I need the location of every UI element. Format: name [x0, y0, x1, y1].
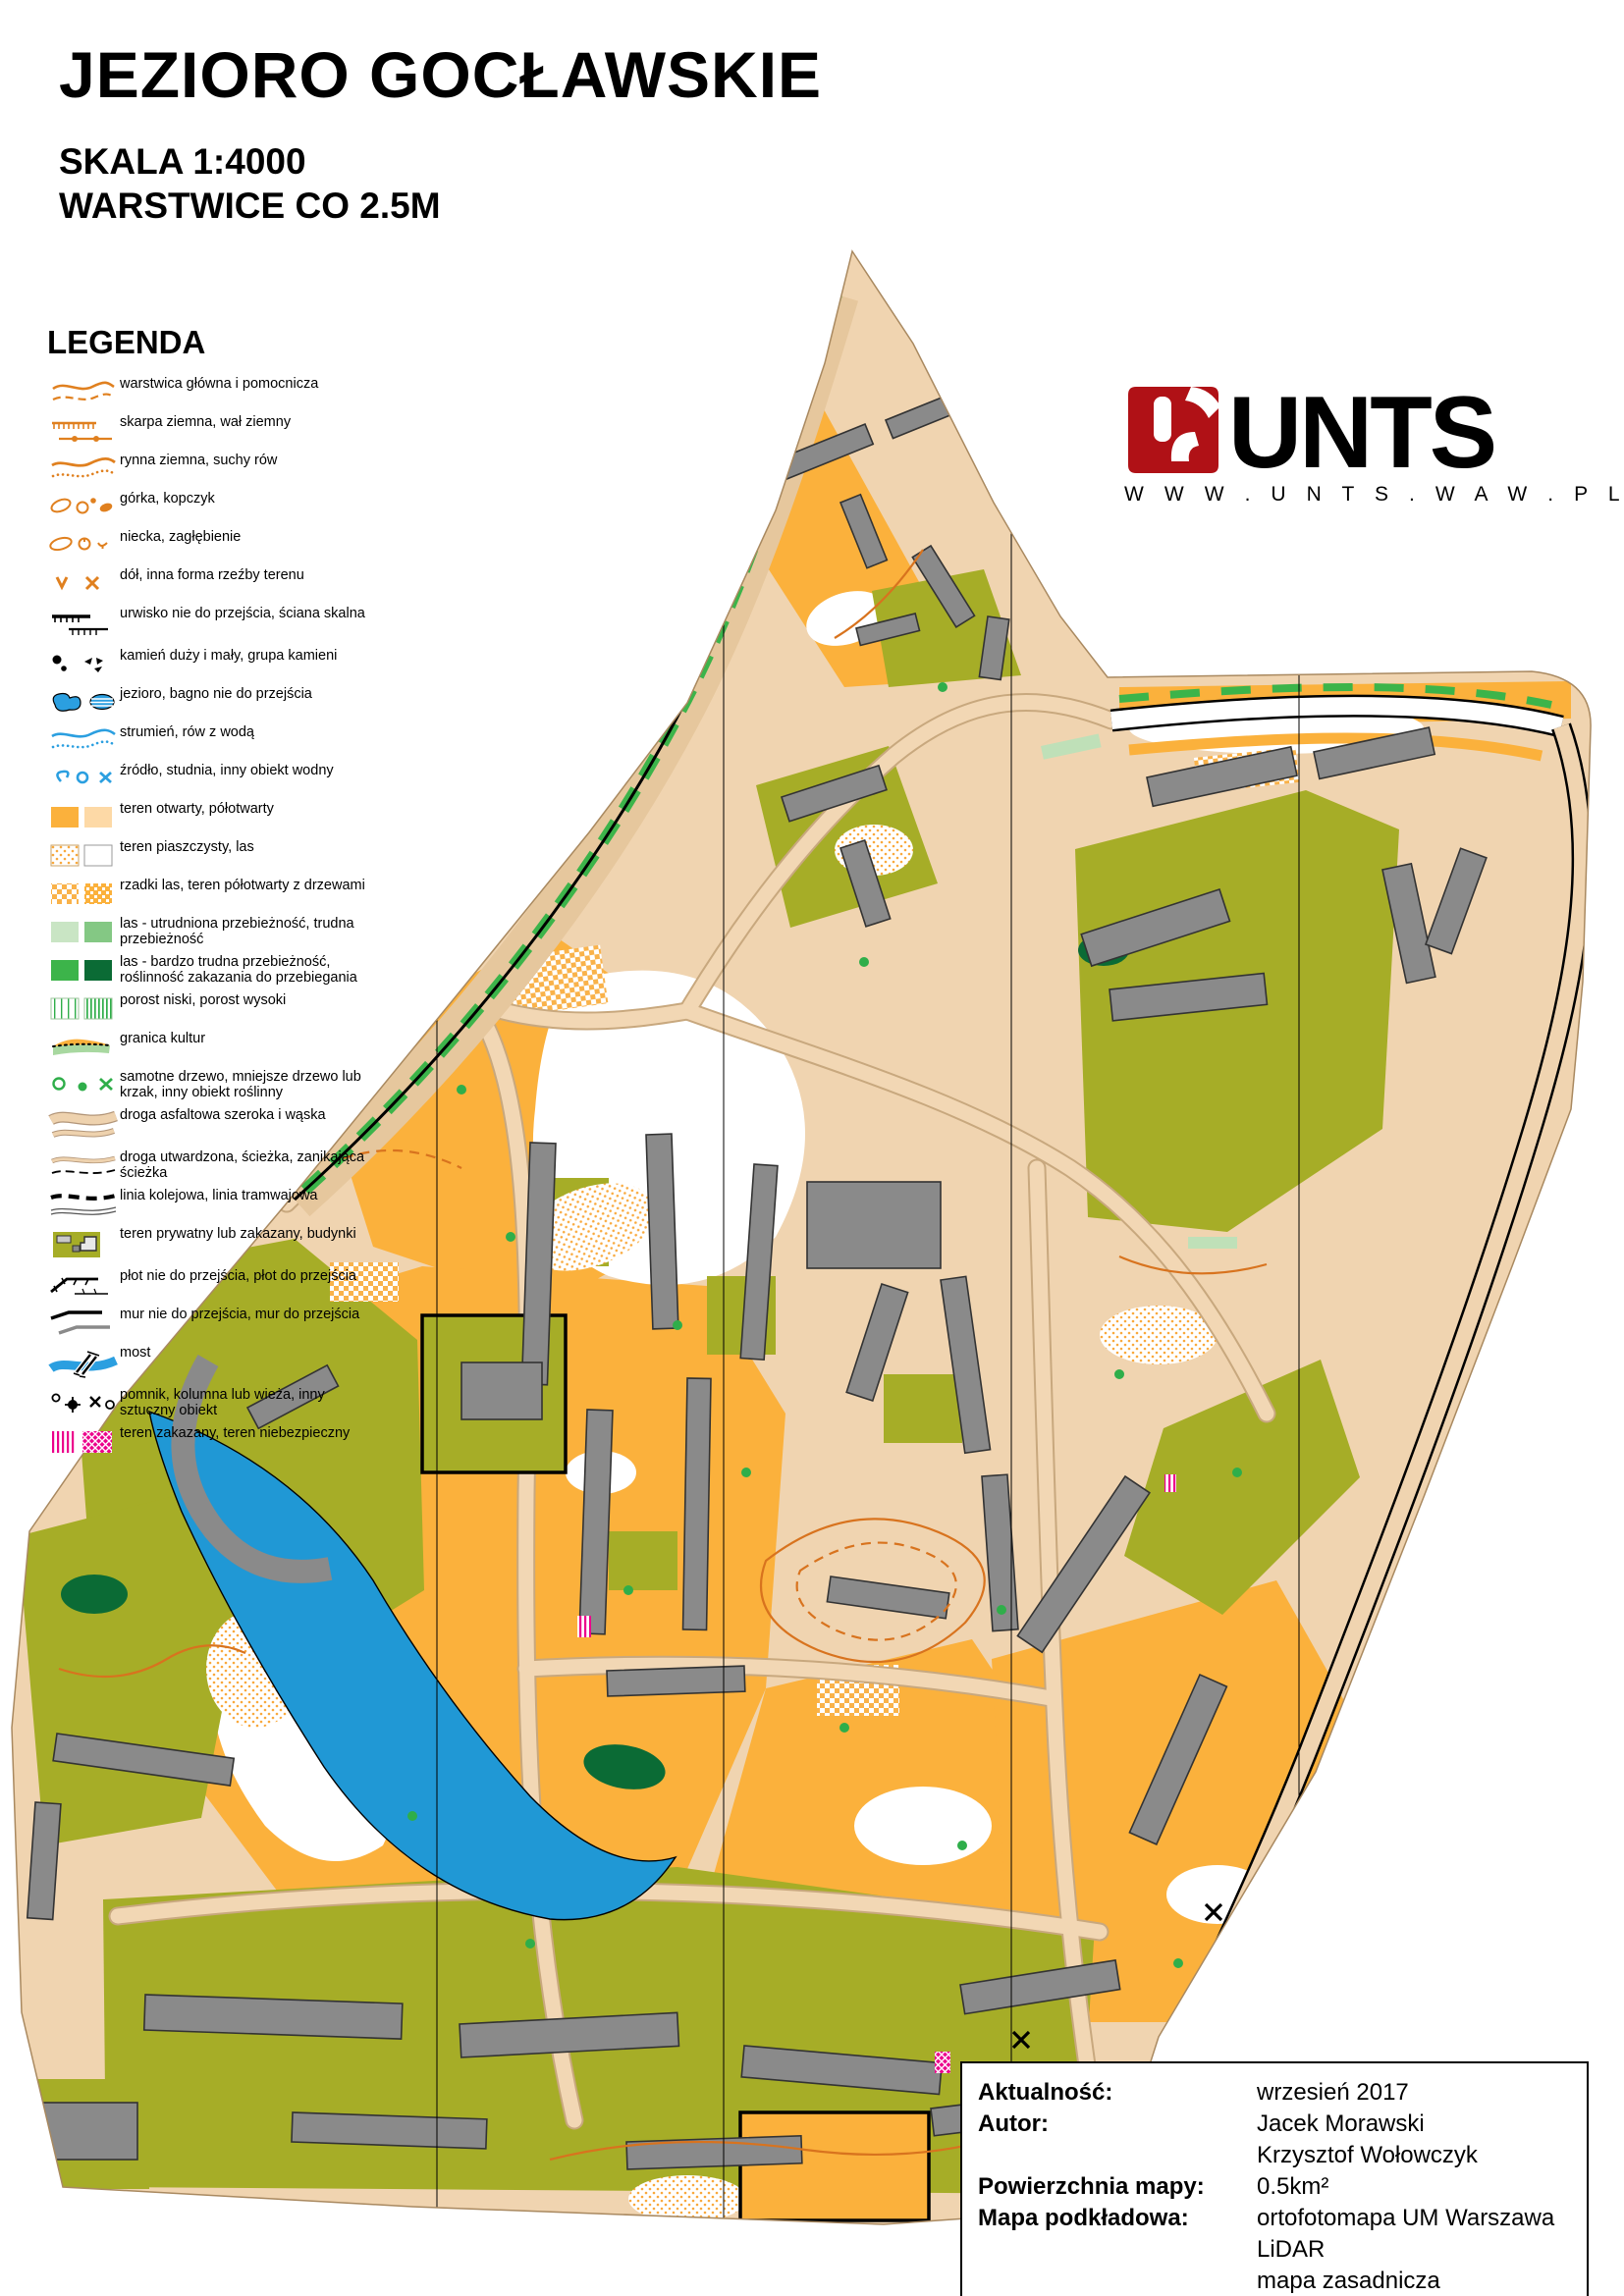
lone-tree-bush-vegetation-icon	[47, 1071, 120, 1100]
map-sheet: { "header": { "title": "JEZIORO GOCŁAWSK…	[0, 0, 1624, 2296]
earth-slope-bank-icon	[47, 416, 120, 446]
legend-item: płot nie do przejścia, płot do przejścia	[47, 1269, 401, 1300]
bridge-icon	[47, 1347, 120, 1380]
railway-tramway-icon	[47, 1190, 120, 1219]
page-title: JEZIORO GOCŁAWSKIE	[59, 37, 822, 112]
contour-main-helper-icon	[47, 378, 120, 407]
credits-row: Krzysztof Wołowczyk	[978, 2140, 1571, 2171]
credits-value: 0.5km²	[1257, 2171, 1571, 2203]
logo-wordmark: UNTS	[1228, 391, 1494, 475]
legend-item: dół, inna forma rzeźby terenu	[47, 568, 401, 599]
legend-item: las - utrudniona przebieżność, trudna pr…	[47, 917, 401, 947]
credits-label: Aktualność:	[978, 2077, 1257, 2109]
legend-item: jezioro, bagno nie do przejścia	[47, 687, 401, 718]
wall-impassable-passable-icon	[47, 1308, 120, 1338]
impassable-cliff-rockface-icon	[47, 608, 120, 641]
credits-row: Mapa podkładowa: ortofotomapa UM Warszaw…	[978, 2203, 1571, 2234]
private-forbidden-area-buildings-icon	[47, 1228, 120, 1261]
legend-item: górka, kopczyk	[47, 492, 401, 522]
legend-item: teren zakazany, teren niebezpieczny	[47, 1426, 401, 1457]
monument-column-tower-icon	[47, 1389, 120, 1418]
undergrowth-low-high-icon	[47, 994, 120, 1024]
legend-item: źródło, studnia, inny obiekt wodny	[47, 764, 401, 794]
credits-value: ortofotomapa UM Warszawa	[1257, 2203, 1571, 2234]
header: JEZIORO GOCŁAWSKIE SKALA 1:4000 WARSTWIC…	[59, 37, 822, 228]
legend-item: linia kolejowa, linia tramwajowa	[47, 1189, 401, 1219]
credits-value: Krzysztof Wołowczyk	[1257, 2140, 1571, 2171]
lake-impassable-marsh-icon	[47, 688, 120, 718]
legend-item: granica kultur	[47, 1032, 401, 1062]
credits-row: LiDAR	[978, 2234, 1571, 2266]
legend: LEGENDA warstwica główna i pomocnicza sk…	[47, 324, 401, 1465]
legend-item: porost niski, porost wysoki	[47, 993, 401, 1024]
credits-label: Autor:	[978, 2109, 1257, 2140]
legend-item: most	[47, 1346, 401, 1380]
credits-value: Jacek Morawski	[1257, 2109, 1571, 2140]
track-path-fading-path-icon	[47, 1151, 120, 1181]
credits-row: Autor: Jacek Morawski	[978, 2109, 1571, 2140]
legend-heading: LEGENDA	[47, 324, 401, 361]
legend-item: strumień, rów z wodą	[47, 725, 401, 756]
credits-value: mapa zasadnicza	[1257, 2266, 1571, 2296]
legend-item: pomnik, kolumna lub wieża, inny sztuczny…	[47, 1388, 401, 1418]
sandy-terrain-forest-icon	[47, 841, 120, 871]
pit-landform-icon	[47, 569, 120, 599]
knoll-mound-icon	[47, 493, 120, 522]
legend-item: urwisko nie do przejścia, ściana skalna	[47, 607, 401, 641]
forest-slow-difficult-icon	[47, 918, 120, 947]
spring-well-water-object-icon	[47, 765, 120, 794]
boulder-stone-group-icon	[47, 650, 120, 679]
cultivation-boundary-icon	[47, 1033, 120, 1062]
credits-row: Aktualność: wrzesień 2017	[978, 2077, 1571, 2109]
credits-label: Powierzchnia mapy:	[978, 2171, 1257, 2203]
legend-item: droga utwardzona, ścieżka, zanikająca śc…	[47, 1150, 401, 1181]
open-semiopen-terrain-icon	[47, 803, 120, 832]
legend-item: rynna ziemna, suchy rów	[47, 454, 401, 484]
un-monogram-icon	[1124, 385, 1222, 475]
legend-item: teren prywatny lub zakazany, budynki	[47, 1227, 401, 1261]
legend-item: mur nie do przejścia, mur do przejścia	[47, 1308, 401, 1338]
legend-item: niecka, zagłębienie	[47, 530, 401, 561]
contour-interval-text: WARSTWICE CO 2.5M	[59, 184, 822, 228]
sparse-forest-scattered-trees-icon	[47, 880, 120, 909]
unts-logo: UNTS W W W . U N T S . W A W . P L	[1124, 385, 1527, 507]
credits-value: LiDAR	[1257, 2234, 1571, 2266]
fence-impassable-passable-icon	[47, 1270, 120, 1300]
legend-item: teren otwarty, półotwarty	[47, 802, 401, 832]
logo-website: W W W . U N T S . W A W . P L	[1124, 483, 1527, 507]
credits-label: Mapa podkładowa:	[978, 2203, 1257, 2234]
earth-gully-dry-ditch-icon	[47, 454, 120, 484]
forest-very-difficult-forbidden-icon	[47, 956, 120, 986]
forbidden-dangerous-area-icon	[47, 1427, 120, 1457]
credits-value: wrzesień 2017	[1257, 2077, 1571, 2109]
legend-item: droga asfaltowa szeroka i wąska	[47, 1108, 401, 1143]
legend-item: warstwica główna i pomocnicza	[47, 377, 401, 407]
depression-hollow-icon	[47, 531, 120, 561]
legend-item: skarpa ziemna, wał ziemny	[47, 415, 401, 446]
legend-item: samotne drzewo, mniejsze drzewo lub krza…	[47, 1070, 401, 1100]
legend-item: las - bardzo trudna przebieżność, roślin…	[47, 955, 401, 986]
legend-item: teren piaszczysty, las	[47, 840, 401, 871]
legend-item: kamień duży i mały, grupa kamieni	[47, 649, 401, 679]
credits-row: mapa zasadnicza	[978, 2266, 1571, 2296]
paved-road-wide-narrow-icon	[47, 1109, 120, 1143]
credits-box: Aktualność: wrzesień 2017 Autor: Jacek M…	[960, 2061, 1589, 2296]
scale-text: SKALA 1:4000	[59, 139, 822, 184]
legend-item: rzadki las, teren półotwarty z drzewami	[47, 879, 401, 909]
stream-water-ditch-icon	[47, 726, 120, 756]
credits-row: Powierzchnia mapy: 0.5km²	[978, 2171, 1571, 2203]
